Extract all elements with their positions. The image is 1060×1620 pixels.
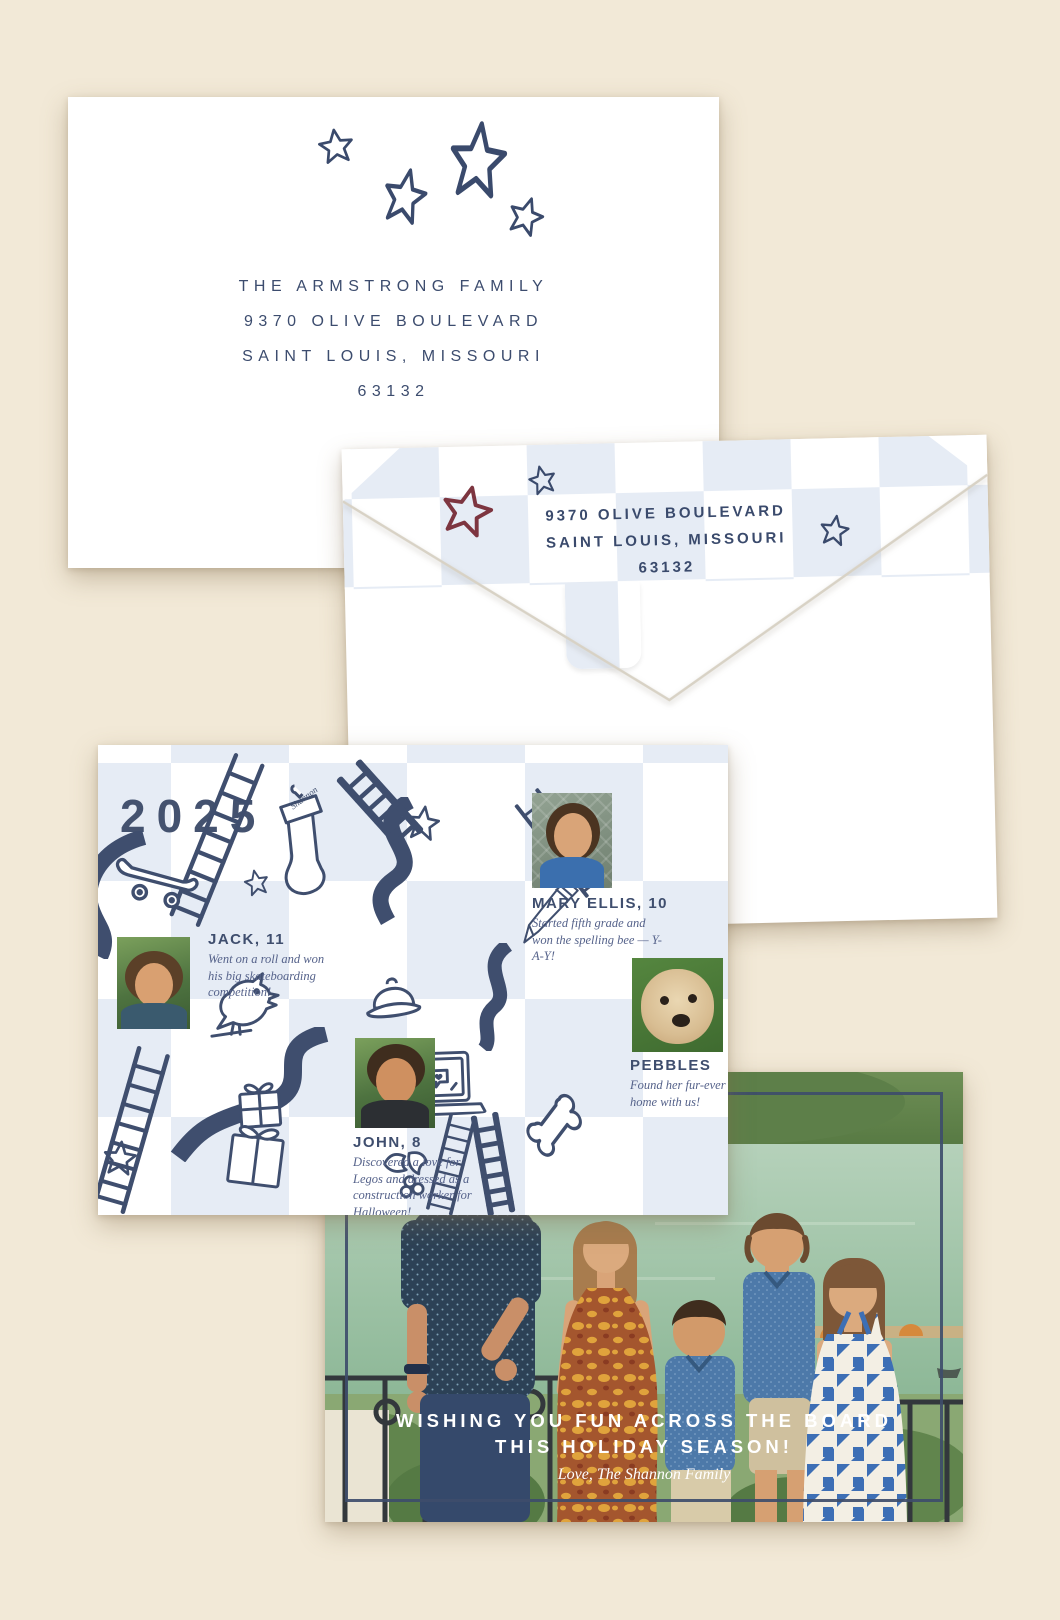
dog-nose [672, 1014, 690, 1027]
greeting-line-1: WISHING YOU FUN ACROSS THE BOARD [325, 1410, 963, 1432]
shirt [361, 1100, 429, 1128]
shirt [121, 1003, 187, 1029]
recipient-address: THE ARMSTRONG FAMILY 9370 OLIVE BOULEVAR… [68, 269, 719, 409]
dog-eye [688, 994, 697, 1003]
star-icon [377, 163, 432, 229]
person-name: JOHN, 8 [353, 1134, 422, 1151]
person-caption: Found her fur-ever home with us! [630, 1077, 726, 1110]
face [135, 963, 173, 1007]
person-name: PEBBLES [630, 1057, 711, 1074]
person-caption: Discovered a love for Legos and dressed … [353, 1154, 489, 1215]
star-icon [503, 191, 550, 240]
recipient-line: THE ARMSTRONG FAMILY [68, 269, 719, 304]
person-caption: Went on a roll and won his big skateboar… [208, 951, 326, 1001]
bone-icon [514, 1089, 593, 1163]
photo-john [355, 1038, 435, 1128]
mockup-canvas: THE ARMSTRONG FAMILY 9370 OLIVE BOULEVAR… [0, 0, 1060, 1620]
photo-pebbles [632, 958, 723, 1052]
recipient-line: 63132 [68, 374, 719, 409]
photo-jack [117, 937, 190, 1029]
person-caption: Started fifth grade and won the spelling… [532, 915, 664, 965]
return-address: 9370 OLIVE BOULEVARD SAINT LOUIS, MISSOU… [343, 493, 990, 589]
face [376, 1058, 416, 1104]
face [554, 813, 592, 859]
game-path [470, 943, 518, 1051]
greeting-signoff: Love, The Shannon Family [325, 1466, 963, 1484]
dog-face [641, 969, 714, 1044]
photo-mary-ellis [532, 793, 612, 888]
star-icon [445, 117, 511, 203]
shirt [540, 857, 604, 888]
recipient-line: 9370 OLIVE BOULEVARD [68, 304, 719, 339]
gifts-icon [219, 1065, 299, 1195]
ladder-icon [98, 1041, 178, 1215]
star-icon [316, 125, 357, 168]
star-icon [404, 803, 443, 843]
person-name: MARY ELLIS, 10 [532, 895, 668, 912]
card-back: 2025 [98, 745, 728, 1215]
greeting-line-2: THIS HOLIDAY SEASON! [325, 1436, 963, 1458]
hardhat-icon [359, 960, 425, 1028]
person-name: JACK, 11 [208, 931, 285, 948]
dog-eye [660, 996, 669, 1005]
stocking-icon: Shannon [268, 774, 342, 902]
star-icon [101, 1138, 139, 1177]
recipient-line: SAINT LOUIS, MISSOURI [68, 339, 719, 374]
star-icon [241, 867, 271, 899]
envelope-flap-tab [565, 582, 642, 670]
skateboard-icon [110, 848, 202, 910]
